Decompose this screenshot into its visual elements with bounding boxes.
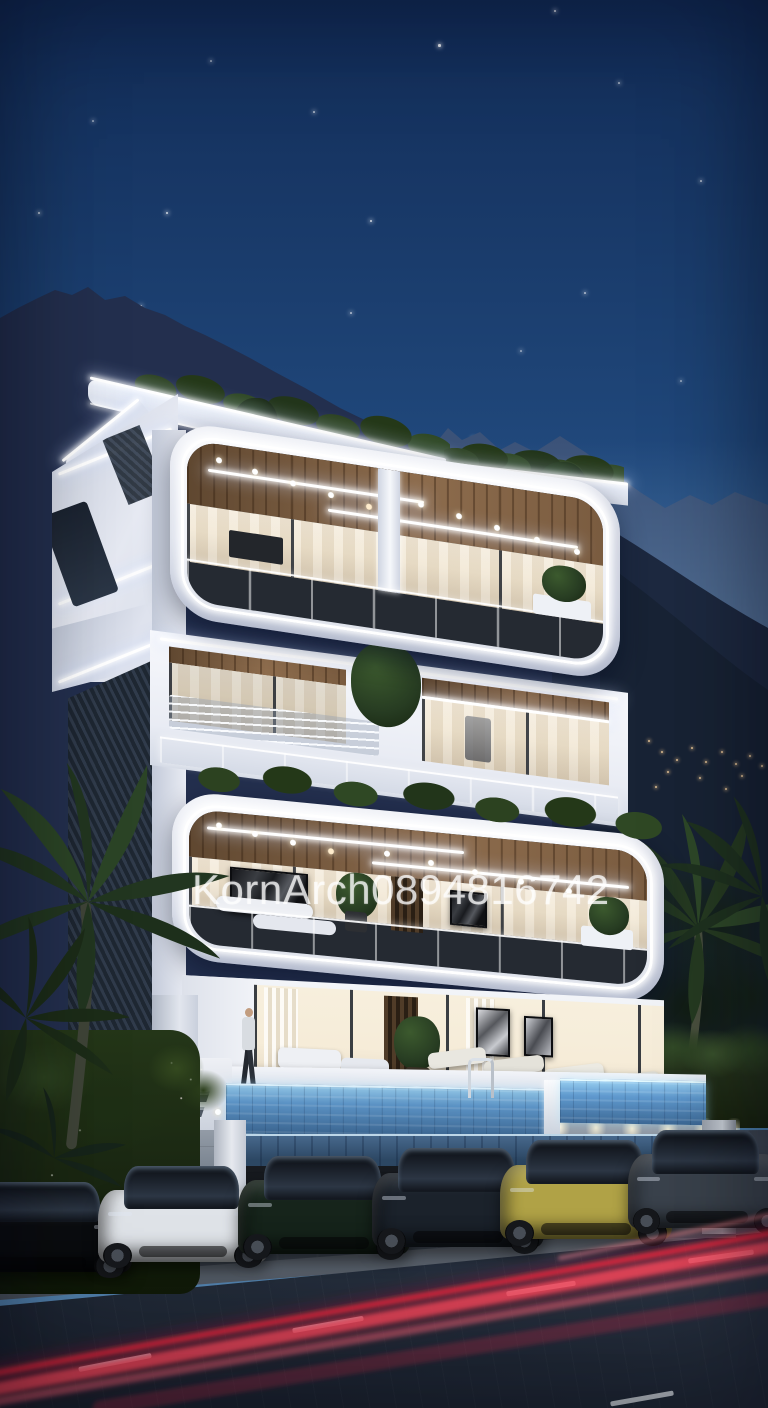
- watermark-text: KornArch0894816742: [192, 866, 652, 914]
- night-villa-render: KornArch0894816742: [0, 0, 768, 1408]
- tail-light-trails: [0, 0, 768, 1408]
